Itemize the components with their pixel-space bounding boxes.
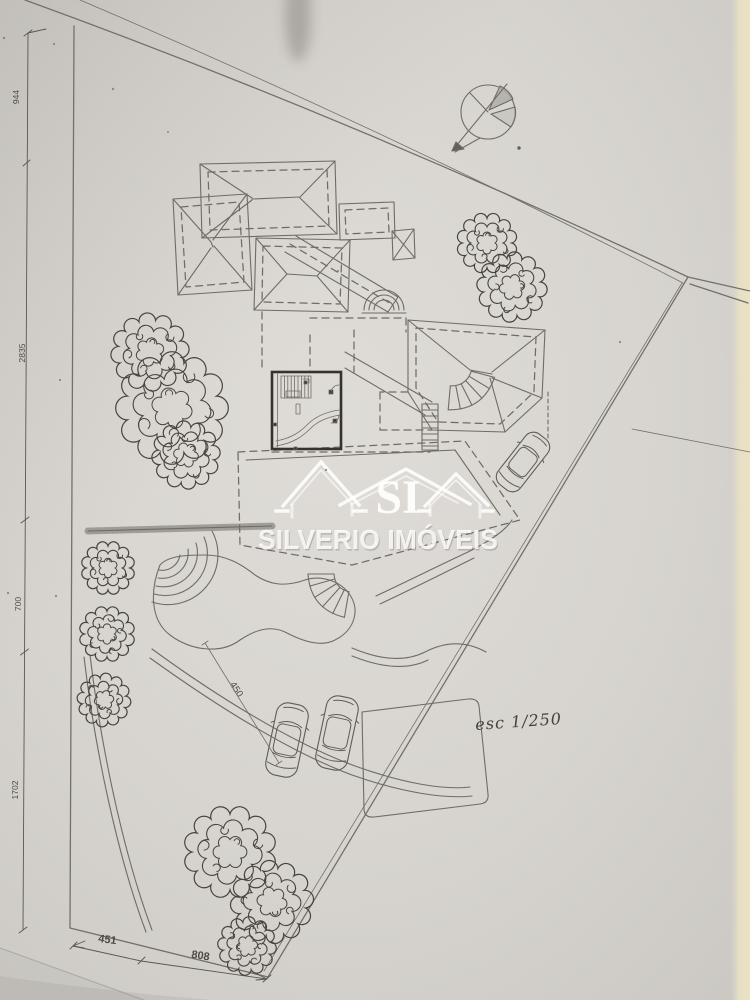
site-plan-svg: 944 2835 700 1702 451 808 450 (0, 0, 750, 1000)
dimension-label-left-4: 1702 (10, 780, 20, 799)
dimension-label-left-3: 700 (13, 597, 23, 611)
site-plan-photo: 944 2835 700 1702 451 808 450 (0, 0, 750, 1000)
watermark-monogram: SI (375, 471, 420, 524)
watermark-brand: SILVERIO IMÓVEIS (258, 524, 498, 555)
paper-edge-right (730, 0, 750, 1000)
dimension-label-bottom-1: 451 (97, 933, 117, 947)
dimension-label-left-2: 2835 (17, 343, 27, 362)
dimension-label-left-1: 944 (11, 90, 21, 104)
